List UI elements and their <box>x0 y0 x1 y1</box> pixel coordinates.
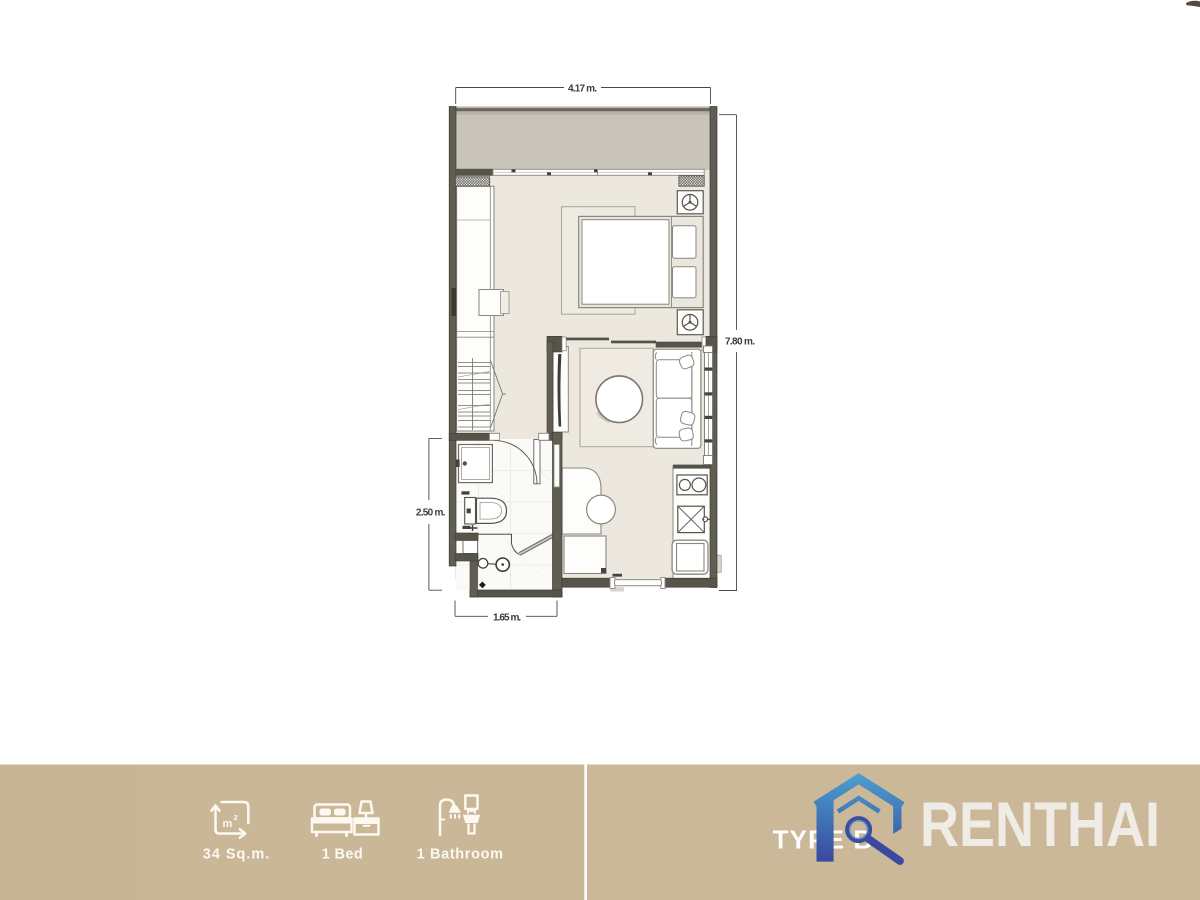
svg-text:34 Sq.m.: 34 Sq.m. <box>203 847 270 863</box>
svg-text:1 Bathroom: 1 Bathroom <box>417 847 503 863</box>
svg-text:2.50 m.: 2.50 m. <box>416 507 446 518</box>
svg-text:7.80 m.: 7.80 m. <box>725 337 755 348</box>
svg-text:2: 2 <box>234 813 238 822</box>
svg-text:m: m <box>223 818 233 830</box>
svg-text:1.65 m.: 1.65 m. <box>493 612 521 623</box>
svg-text:RENTHAI: RENTHAI <box>920 790 1160 860</box>
svg-text:1 Bed: 1 Bed <box>322 847 363 863</box>
svg-text:4.17 m.: 4.17 m. <box>568 84 597 95</box>
